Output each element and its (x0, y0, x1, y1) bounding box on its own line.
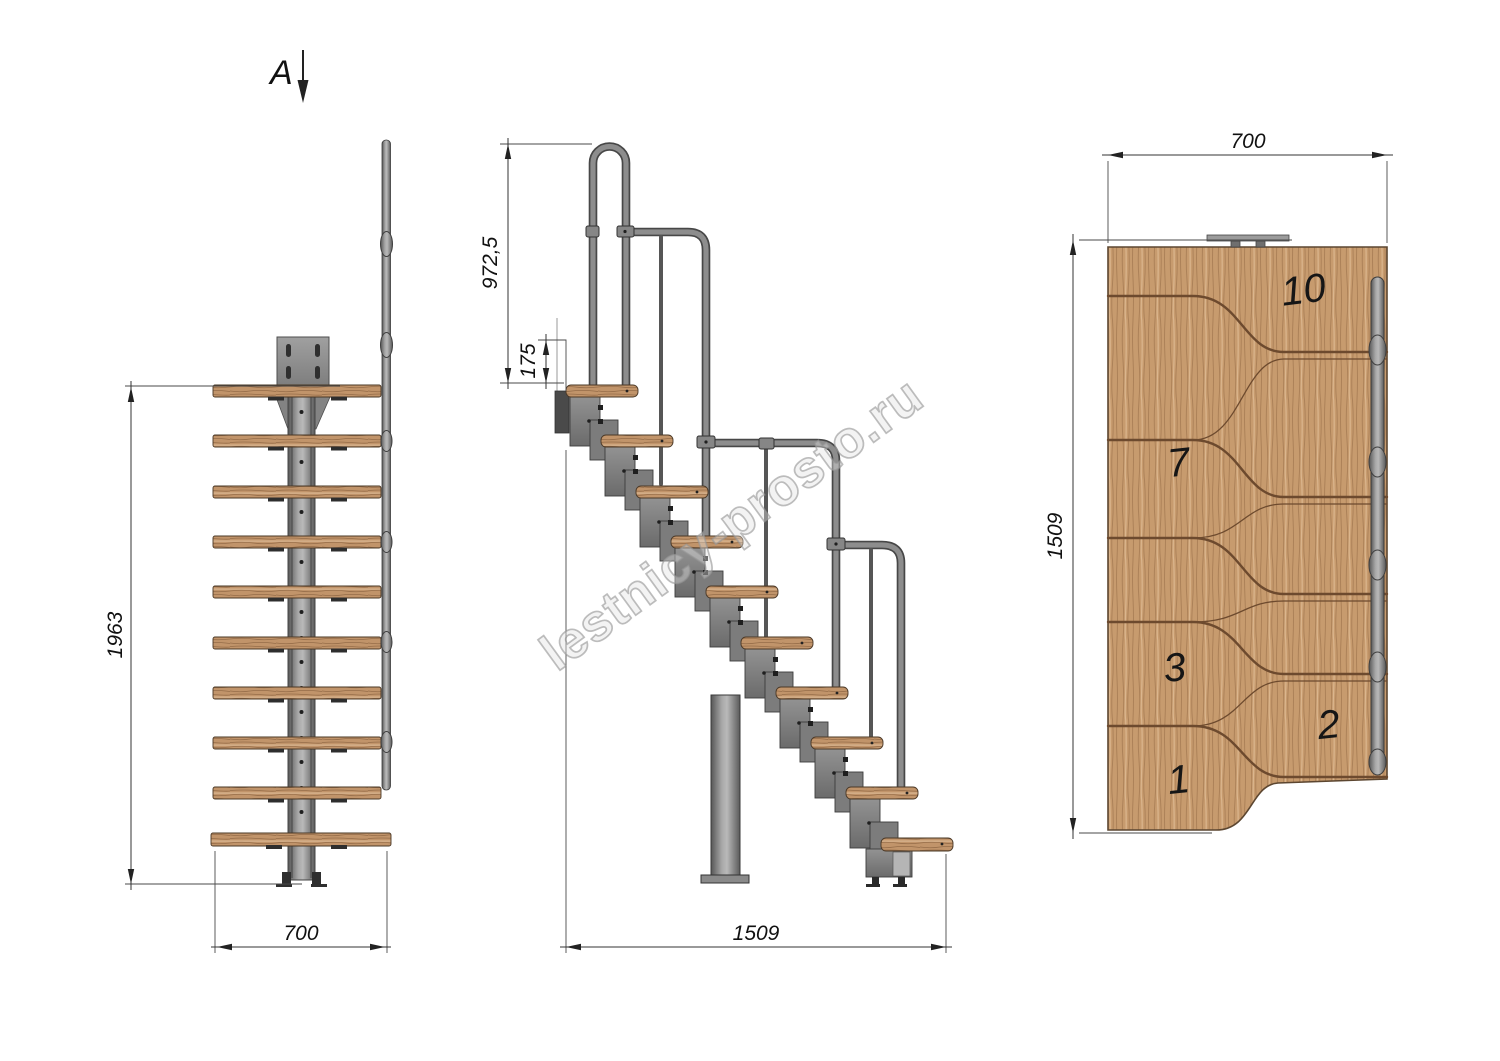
side-rise-label: 175 (517, 343, 540, 378)
side-rail-height-label: 972,5 (479, 236, 502, 289)
plan-width-label: 700 (1230, 130, 1265, 153)
plan-length-label: 1509 (1044, 512, 1067, 559)
side-rise-dimension: 175 (517, 334, 566, 391)
step-number-3: 3 (1161, 645, 1188, 691)
step-number-10: 10 (1279, 266, 1329, 315)
bottom-module-feet (866, 877, 907, 887)
blueprint-canvas: A (0, 0, 1500, 1061)
step-number-2: 2 (1314, 702, 1342, 748)
plan-wall-bracket (1207, 235, 1289, 247)
handrail-top-loop (593, 147, 626, 388)
plan-railing (1369, 277, 1386, 775)
step-number-1: 1 (1165, 757, 1192, 803)
staircase-technical-drawing: A (0, 0, 1500, 1061)
bottom-module-panel (893, 852, 910, 876)
side-support-column (711, 695, 740, 877)
section-marker: A (268, 50, 309, 103)
front-view: 1963 700 (104, 140, 393, 953)
side-run-label: 1509 (733, 922, 780, 945)
section-label: A (268, 54, 293, 92)
plan-view: 10 7 3 2 1 700 (1044, 130, 1393, 839)
section-arrow-head (298, 80, 309, 103)
front-height-label: 1963 (104, 611, 127, 658)
front-wall-plate (277, 337, 329, 387)
plan-width-dimension: 700 (1102, 130, 1393, 243)
side-column-base-plate (701, 875, 749, 883)
side-wall-bracket (555, 391, 569, 433)
front-width-label: 700 (283, 922, 318, 945)
